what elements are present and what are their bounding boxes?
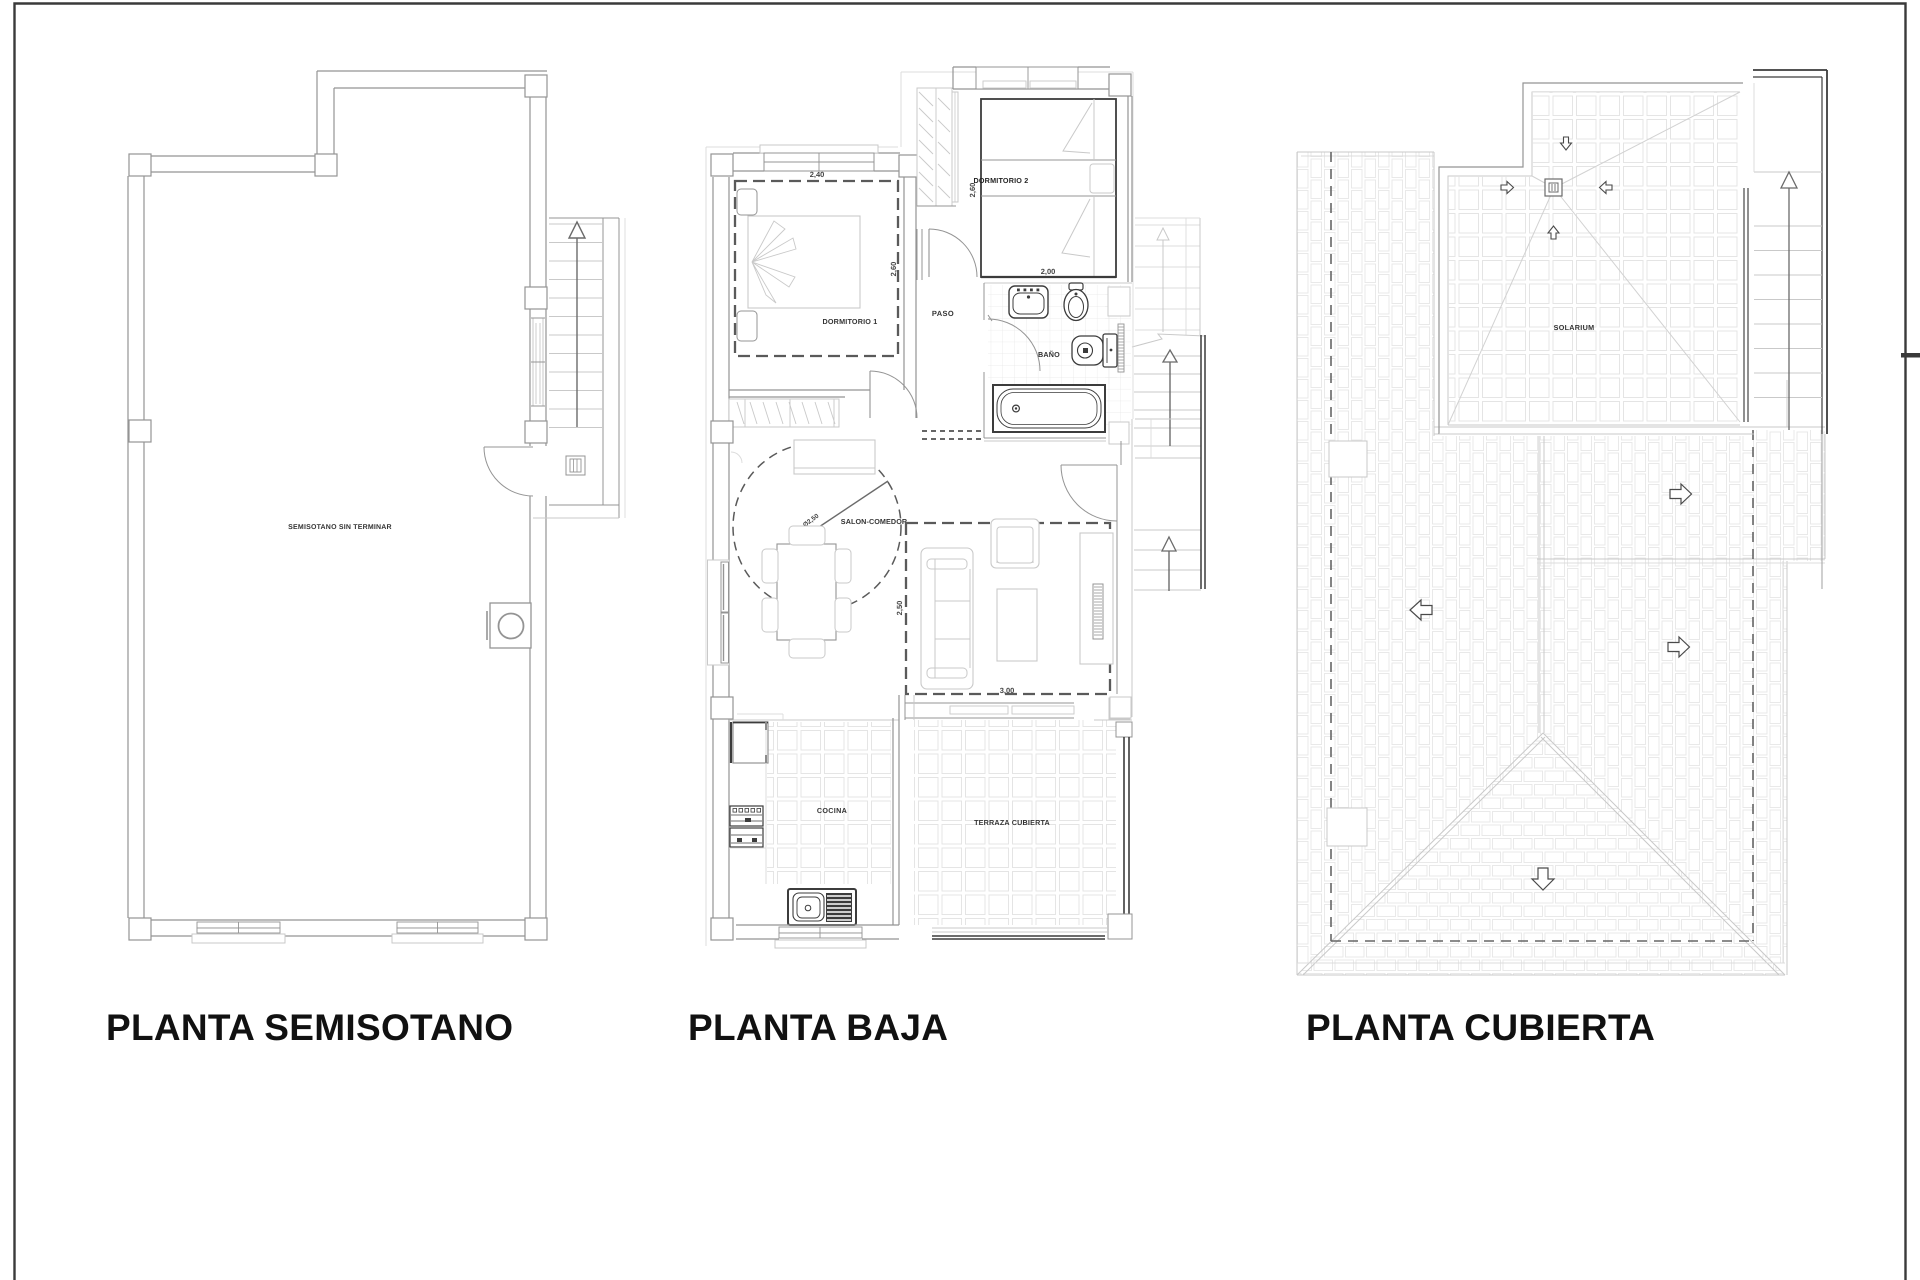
svg-text:2,60: 2,60	[889, 262, 898, 277]
svg-text:PASO: PASO	[932, 309, 954, 318]
svg-text:COCINA: COCINA	[817, 806, 847, 815]
svg-text:DORMITORIO 2: DORMITORIO 2	[974, 176, 1029, 185]
svg-text:2,60: 2,60	[968, 183, 977, 198]
svg-text:2,40: 2,40	[810, 170, 825, 179]
svg-text:2,00: 2,00	[1041, 267, 1056, 276]
svg-text:PLANTA SEMISOTANO: PLANTA SEMISOTANO	[106, 1007, 513, 1048]
svg-text:SOLARIUM: SOLARIUM	[1554, 323, 1595, 332]
svg-text:PLANTA BAJA: PLANTA BAJA	[688, 1007, 948, 1048]
svg-text:2,50: 2,50	[895, 601, 904, 616]
svg-text:DORMITORIO 1: DORMITORIO 1	[823, 317, 878, 326]
svg-text:BAÑO: BAÑO	[1038, 350, 1060, 359]
svg-text:3,00: 3,00	[1000, 686, 1015, 695]
svg-text:TERRAZA CUBIERTA: TERRAZA CUBIERTA	[974, 818, 1050, 827]
svg-text:PLANTA CUBIERTA: PLANTA CUBIERTA	[1306, 1007, 1655, 1048]
svg-text:SALON-COMEDOR: SALON-COMEDOR	[841, 517, 908, 526]
svg-text:SEMISOTANO SIN TERMINAR: SEMISOTANO SIN TERMINAR	[288, 524, 392, 531]
